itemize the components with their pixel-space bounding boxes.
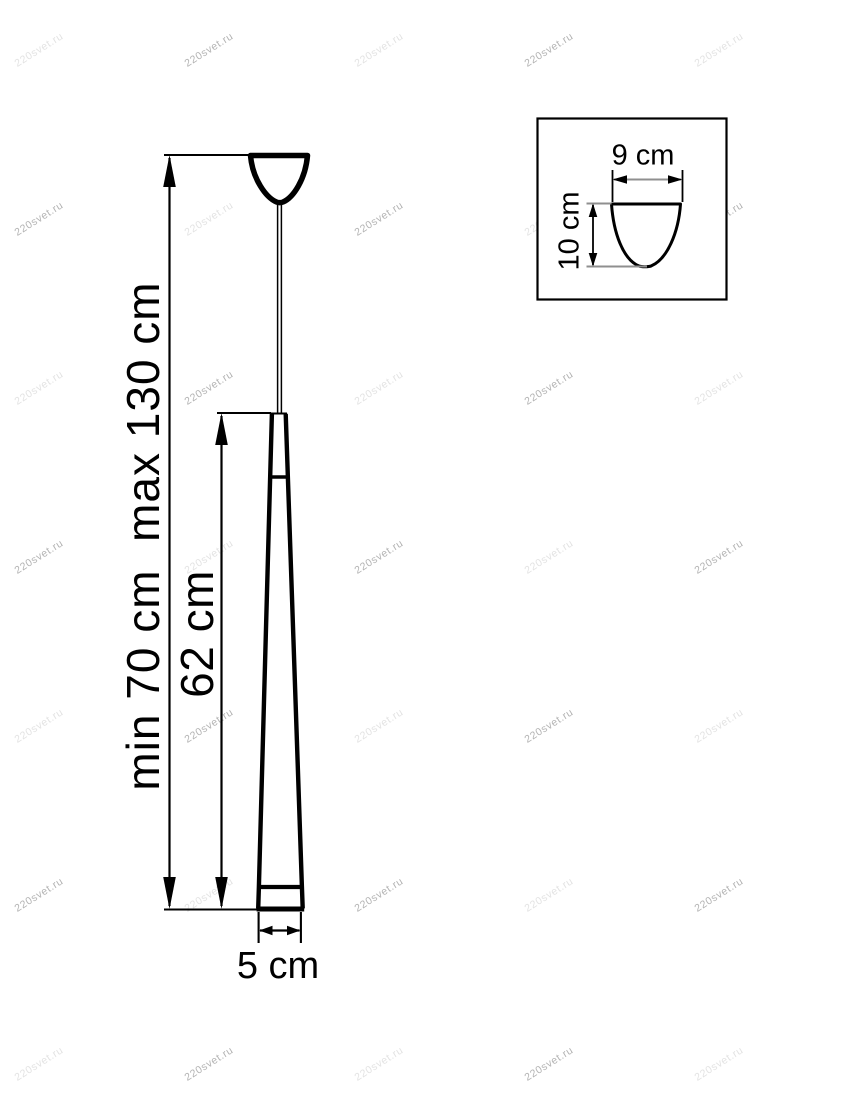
cone-shade	[257, 414, 305, 910]
label-suspension-height: min 70 cm max 130 cm	[120, 281, 166, 790]
arrow-left-icon	[259, 926, 272, 936]
arrow-right-icon	[287, 926, 300, 936]
arrow-down-icon	[215, 877, 228, 909]
label-canopy-height: 10 cm	[556, 192, 585, 271]
canopy-shape	[251, 156, 308, 203]
arrow-up-icon	[163, 155, 176, 187]
arrow-down-icon	[163, 877, 176, 909]
arrow-up-icon	[215, 413, 228, 445]
suspension-cord	[278, 202, 282, 413]
label-canopy-diameter: 9 cm	[612, 142, 675, 171]
label-shade-diameter: 5 cm	[237, 947, 319, 985]
dimension-diagram-page: 220svet.ru220svet.ru220svet.ru220svet.ru…	[0, 0, 850, 1100]
label-shade-height: 62 cm	[174, 570, 220, 698]
dimension-line-shade-diameter	[259, 926, 300, 936]
